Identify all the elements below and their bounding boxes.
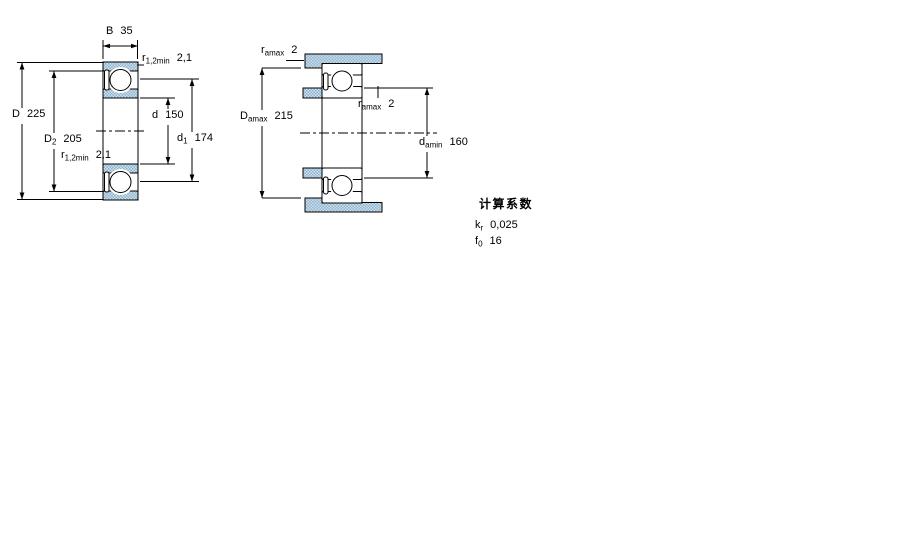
ball-top — [332, 71, 352, 91]
drawing-canvas — [0, 0, 900, 560]
shield-bottom — [324, 177, 329, 194]
dim-label-D: D225 — [10, 108, 47, 124]
dim-Damax — [260, 68, 301, 198]
arrowhead — [103, 44, 110, 49]
arrowhead — [260, 68, 265, 75]
dim-label-d: d150 — [150, 109, 185, 125]
dim-label-D2: D2205 — [42, 133, 84, 149]
arrowhead — [425, 171, 430, 178]
dim-label-r-top: r1,2min2,1 — [142, 52, 192, 68]
bearing-drawing-page: B35 r1,2min2,1 D225 D2205 d150 d1174 r1,… — [0, 0, 900, 560]
shield-top — [105, 70, 110, 90]
calculation-factors-heading: 计算系数 — [479, 195, 533, 212]
dim-label-Damax: Damax215 — [238, 110, 295, 126]
arrowhead — [131, 44, 138, 49]
arrowhead — [190, 79, 195, 86]
factor-kr: kr0,025 — [475, 219, 518, 233]
arrowhead — [190, 175, 195, 182]
arrowhead — [20, 193, 25, 200]
arrowhead — [52, 185, 57, 192]
dim-d1 — [140, 79, 199, 182]
dim-label-r-bottom: r1,2min2,1 — [61, 149, 111, 165]
shaft-shoulder-top — [303, 88, 322, 98]
dim-D — [17, 63, 103, 200]
dim-label-B: B35 — [106, 25, 133, 41]
dim-label-ra-top: ramax2 — [261, 44, 297, 60]
arrowhead — [166, 98, 171, 105]
arrowhead — [425, 88, 430, 95]
arrowhead — [166, 157, 171, 164]
arrowhead — [20, 63, 25, 70]
ball-top — [110, 70, 131, 91]
shield-bottom — [105, 172, 110, 192]
ball-bottom — [332, 176, 352, 196]
shield-top — [324, 73, 329, 90]
dim-D2 — [49, 71, 103, 192]
dim-label-ra-mid: ramax2 — [358, 98, 394, 114]
shaft-shoulder-bottom — [303, 168, 322, 178]
dim-d — [140, 98, 175, 164]
arrowhead — [260, 191, 265, 198]
dim-label-d1: d1174 — [175, 132, 215, 148]
ball-bottom — [110, 172, 131, 193]
arrowhead — [52, 71, 57, 78]
factor-f0: f016 — [475, 235, 502, 249]
figure-right-mounting — [260, 54, 437, 212]
dim-B — [103, 40, 138, 59]
dim-label-damin: damin160 — [417, 136, 470, 152]
